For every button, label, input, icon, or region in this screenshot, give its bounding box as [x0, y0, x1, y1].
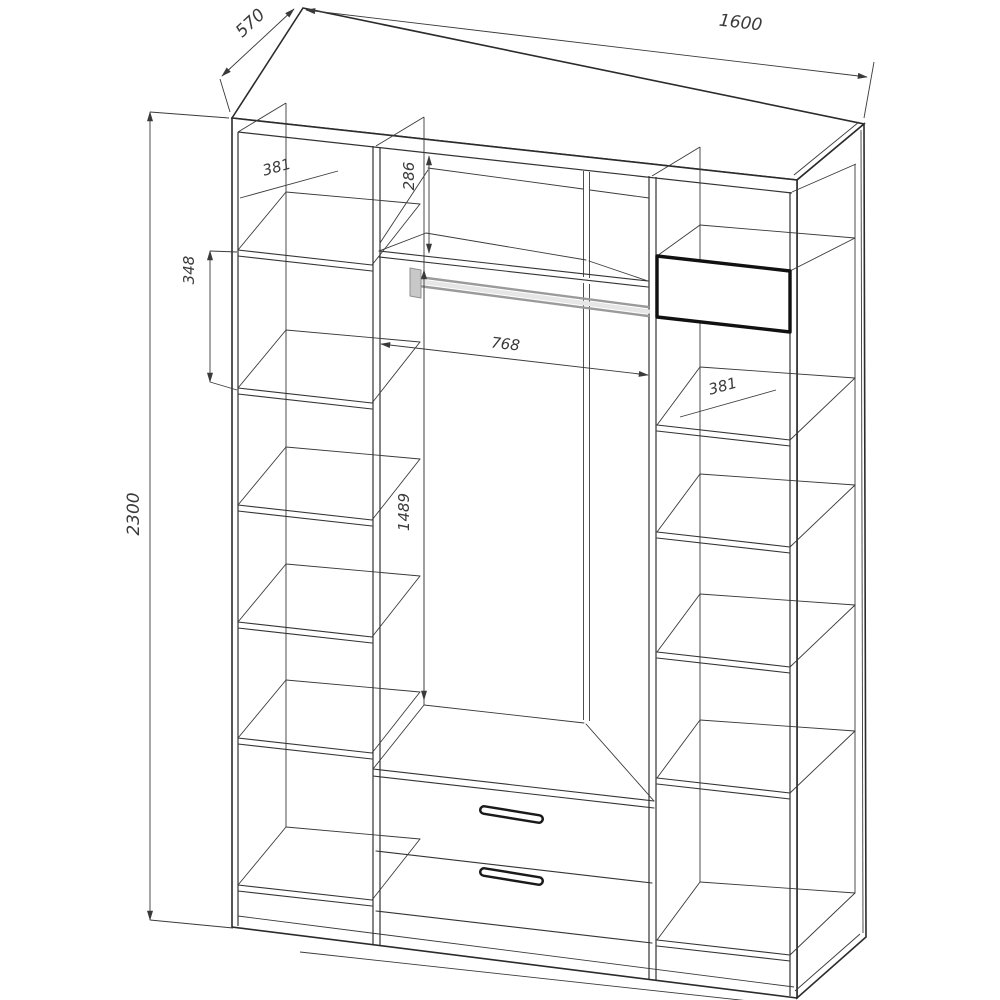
dim-label-348: 348 [180, 256, 198, 285]
dim-label-768: 768 [490, 333, 521, 354]
wardrobe-technical-drawing: 1600 570 2300 348 381 286 [0, 0, 1000, 1000]
dim-overall-height: 2300 [124, 112, 233, 928]
dim-label-height: 2300 [124, 492, 144, 535]
dim-label-depth: 570 [232, 5, 269, 42]
dim-label-1489: 1489 [395, 493, 413, 531]
dim-label-width: 1600 [718, 11, 763, 36]
dim-label-286: 286 [400, 162, 418, 191]
cabinet-shell [232, 8, 866, 1000]
rod-end-flange [410, 268, 421, 298]
technical-drawing-page: 1600 570 2300 348 381 286 [0, 0, 1000, 1000]
dim-left-second-cubby: 348 [180, 251, 237, 390]
front-frame [232, 118, 797, 998]
right-side-panel [797, 124, 866, 998]
right-drawer-box [657, 256, 790, 332]
